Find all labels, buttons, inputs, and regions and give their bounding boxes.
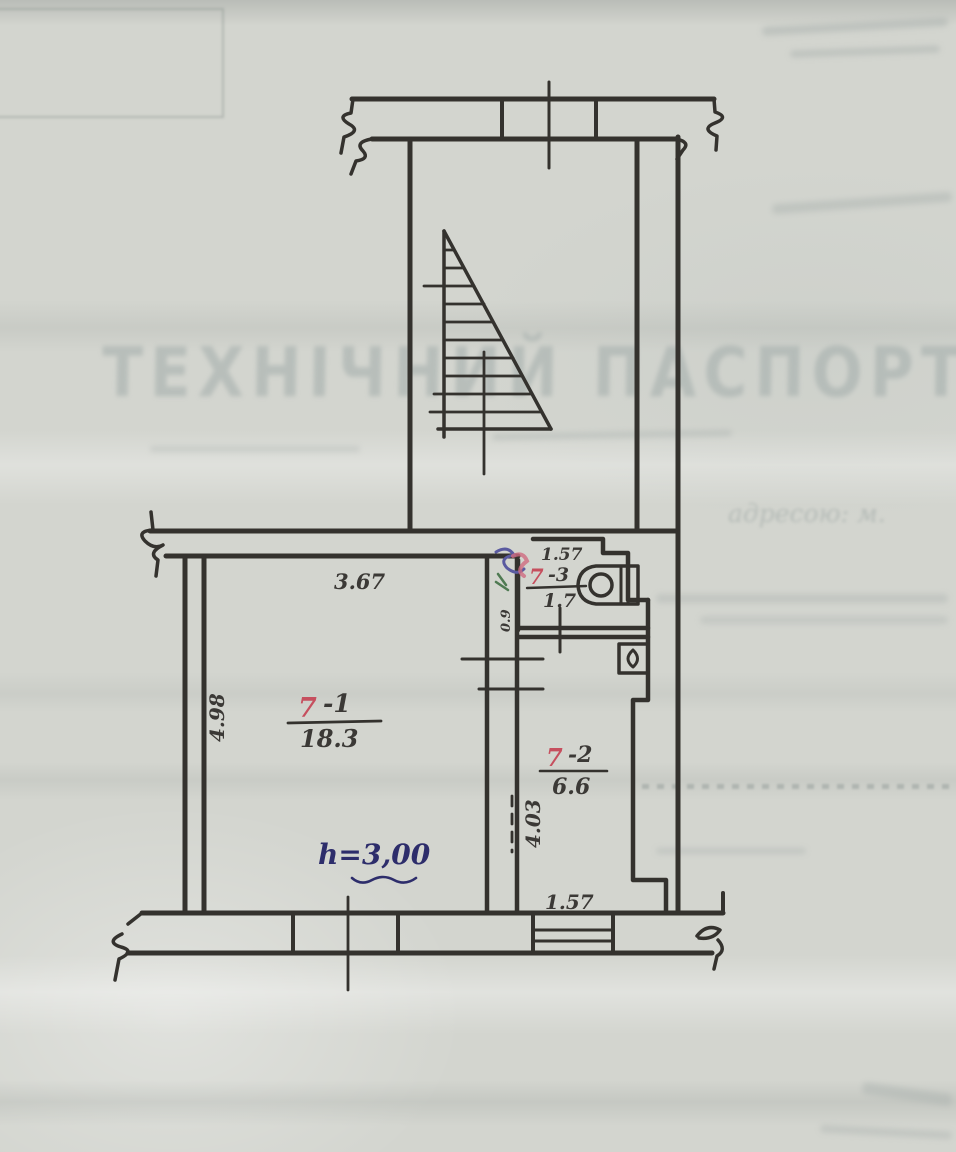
- wall-break-icon: [113, 913, 142, 980]
- height-note-prefix: h=: [318, 838, 362, 871]
- dim-room2-depth: 4.03: [521, 799, 545, 848]
- stair-shaft-walls: [410, 137, 678, 913]
- height-note-value: 3,00: [362, 838, 431, 871]
- room-area: 18.3: [300, 724, 358, 753]
- wall-break-icon: [708, 99, 723, 150]
- room-number-suffix: -1: [323, 689, 351, 718]
- floor-plan: 7 -1 18.3 7 -2 6.6 7 -3 1.7 3.67 4.98 4.…: [0, 0, 956, 1152]
- wavy-underline: [352, 877, 416, 883]
- room-area: 1.7: [543, 590, 576, 612]
- room-number-suffix: -2: [568, 742, 592, 768]
- room-number: 7: [546, 743, 563, 772]
- dim-room3-depth: 0.9: [499, 609, 514, 632]
- wall-break-icon: [142, 512, 163, 576]
- wall-break-icon: [351, 139, 372, 174]
- dim-room3-width: 1.57: [541, 545, 583, 565]
- toilet-icon: [578, 566, 638, 604]
- window-symbol-room2: [533, 913, 613, 953]
- dim-room1-width: 3.67: [334, 569, 386, 594]
- room-number: 7: [529, 564, 544, 589]
- room-7-1-label: 7 -1 18.3: [288, 689, 381, 753]
- sink-icon: [619, 644, 648, 673]
- dim-room1-depth: 4.98: [205, 693, 229, 742]
- staircase: [424, 231, 551, 474]
- door-opening-marks: [462, 659, 543, 689]
- room-number-suffix: -3: [548, 564, 569, 586]
- wall-break-icon: [697, 928, 722, 969]
- room-number: 7: [298, 693, 317, 724]
- wall-break-icon: [341, 99, 354, 153]
- height-note: h= 3,00: [318, 838, 431, 883]
- room-7-2-label: 7 -2 6.6: [540, 742, 607, 800]
- room-area: 6.6: [552, 774, 590, 800]
- dim-room2-width: 1.57: [545, 890, 594, 914]
- window-symbol-top: [502, 82, 596, 168]
- top-outer-wall: [341, 82, 723, 174]
